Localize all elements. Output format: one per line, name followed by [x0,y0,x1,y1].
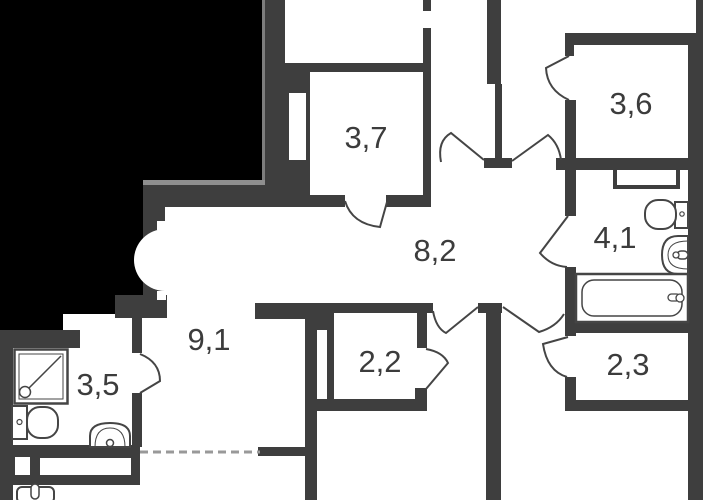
room-label-2-2: 2,2 [358,344,401,379]
door-jamb [157,221,166,230]
room-label-3-7: 3,7 [344,120,387,155]
wall-segment [285,63,431,72]
room-label-3-6: 3,6 [609,86,652,121]
wall-segment [487,0,501,84]
wall-segment [317,308,327,330]
wall-segment [486,313,501,500]
basin-tap-knob [673,252,679,258]
outside-block [0,186,143,314]
room-label-4-1: 4,1 [593,220,636,255]
wall-segment [495,84,502,160]
shower-drain [20,387,31,398]
wall-segment [565,45,574,56]
wall-segment [265,0,285,196]
shower-tray-fixture [15,350,68,404]
toilet-button [680,212,684,216]
window-line [285,93,289,160]
floor-plan: 3,7 3,6 8,2 4,1 9,1 2,2 2,3 3,5 [0,0,703,500]
wall-segment [565,33,690,45]
wall-segment [688,33,703,500]
bathtub-tap-knob [676,294,684,302]
wall-segment [423,0,431,11]
wall-segment [132,393,142,447]
wall-segment [132,318,142,353]
toilet-bowl [27,407,58,438]
room-label-8-2: 8,2 [413,233,456,268]
wall-segment [255,303,311,319]
wall-segment [327,308,334,403]
toilet-fixture [12,406,58,439]
room-label-2-3: 2,3 [606,347,649,382]
sink-tap [31,484,39,499]
wall-segment [417,308,427,348]
basin-tap [107,440,114,447]
toilet-fixture [645,200,688,229]
wash-basin-fixture [662,236,688,274]
wall-segment [305,399,427,411]
wall-segment [484,158,512,168]
kitchen-sink-fixture [17,484,54,500]
room-label-3-5: 3,5 [76,367,119,402]
wall-segment [423,28,431,207]
wall-segment [283,195,345,207]
duct-shaft [15,457,30,475]
wall-segment [565,400,703,411]
floor-plan-drawing: 3,7 3,6 8,2 4,1 9,1 2,2 2,3 3,5 [0,0,703,500]
wall-segment [285,160,310,196]
toilet-bowl [645,200,676,229]
wall-segment [478,303,502,313]
outside-block [0,0,263,186]
window-line [306,93,310,160]
edge-highlight [143,180,271,185]
wall-segment [565,322,690,333]
wash-basin-fixture [90,423,130,447]
wall-segment [386,195,431,207]
bathtub-fixture [576,274,688,322]
duct-shaft [615,168,678,187]
room-label-9-1: 9,1 [187,322,230,357]
wall-segment [258,447,305,456]
wall-segment [696,0,703,33]
wall-segment [565,100,576,216]
door-jamb [157,291,166,300]
duct-shaft [40,458,131,475]
bathtub-inner [582,280,682,316]
toilet-button [17,420,22,425]
